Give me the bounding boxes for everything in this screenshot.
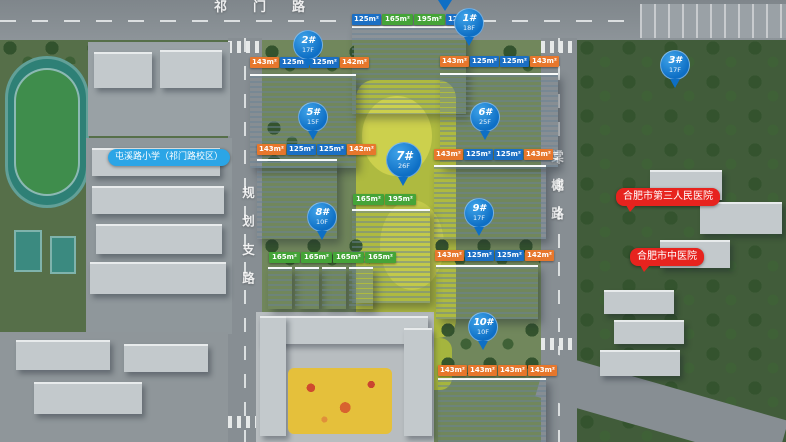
area-tag: 143m² <box>440 56 469 67</box>
area-tag: 125m² <box>500 56 529 67</box>
pin-balloon: 7# 26F <box>386 142 422 178</box>
pin-floors: 10F <box>316 219 328 226</box>
pin-number: 10# <box>473 318 492 328</box>
pin-tail <box>464 37 474 46</box>
area-tag: 142m² <box>340 57 369 68</box>
area-tag: 165m² <box>333 252 364 263</box>
area-tag: 143m² <box>435 250 464 261</box>
tower-8c <box>322 267 346 309</box>
school-roof <box>92 186 224 214</box>
pin-floors: 17F <box>302 47 314 54</box>
building-pin-9: 9# 17F <box>462 198 496 236</box>
crosswalk <box>541 338 577 350</box>
building-roof <box>600 350 680 376</box>
area-tag: 165m² <box>365 252 396 263</box>
hospital-roof <box>700 202 782 234</box>
road-name-top: 祁门路 <box>214 0 331 15</box>
sports-court <box>14 230 42 272</box>
pin-tail <box>317 231 327 240</box>
kindergarten-wing <box>260 316 286 436</box>
pin-balloon: 2# 17F <box>293 30 323 60</box>
pin-number: 5# <box>307 108 320 118</box>
pin-balloon: 5# 15F <box>298 102 328 132</box>
area-tags-building-5: 143m² 125m² 125m² 142m² <box>257 144 376 155</box>
road-name-left: 规划支路 <box>238 186 257 300</box>
track-infield <box>16 70 78 194</box>
building-roof <box>614 320 684 344</box>
hospital-label-1: 合肥市第三人民医院 <box>616 188 720 206</box>
area-tag: 143m² <box>250 57 279 68</box>
area-tag: 143m² <box>524 149 553 160</box>
pin-balloon: 10# 10F <box>468 312 498 342</box>
area-tags-building-7: 165m² 195m² <box>353 194 416 205</box>
school-roof <box>160 50 222 88</box>
building-pin-6: 6# 25F <box>468 102 502 140</box>
pin-balloon: 3# 17F <box>660 50 690 80</box>
area-tag: 165m² <box>301 252 332 263</box>
tower-8a <box>268 267 292 309</box>
pin-floors: 10F <box>477 329 489 336</box>
area-tag: 142m² <box>525 250 554 261</box>
area-tag: 195m² <box>385 194 416 205</box>
area-tag: 143m² <box>257 144 286 155</box>
school-roof <box>96 224 222 254</box>
school-roof <box>94 52 152 88</box>
pin-tail <box>478 341 488 350</box>
area-tag: 143m² <box>438 365 467 376</box>
parking-lot <box>640 4 786 38</box>
clipped-pin-tail <box>438 0 452 11</box>
tower-9 <box>436 265 538 319</box>
pin-floors: 26F <box>398 163 410 170</box>
area-tag: 165m² <box>269 252 300 263</box>
building-pin-5: 5# 15F <box>296 102 330 140</box>
pin-tail <box>670 79 680 88</box>
area-tags-building-10: 143m² 143m² 143m² 143m² <box>438 365 557 376</box>
pin-tail <box>474 227 484 236</box>
area-tag: 143m² <box>468 365 497 376</box>
pin-floors: 18F <box>463 25 475 32</box>
area-tags-building-9: 143m² 125m² 125m² 142m² <box>435 250 554 261</box>
area-tag: 143m² <box>498 365 527 376</box>
area-tag: 143m² <box>434 149 463 160</box>
pin-balloon: 9# 17F <box>464 198 494 228</box>
crosswalk <box>541 41 577 53</box>
area-tag: 165m² <box>353 194 384 205</box>
area-tag: 125m² <box>287 144 316 155</box>
pin-floors: 17F <box>473 215 485 222</box>
building-pin-3: 3# 17F <box>658 50 692 88</box>
pin-number: 7# <box>396 150 412 162</box>
tower-10 <box>438 378 546 442</box>
crosswalk <box>228 41 262 53</box>
area-tag: 125m² <box>494 149 523 160</box>
building-roof <box>124 344 208 372</box>
building-roof <box>34 382 142 414</box>
area-tag: 142m² <box>347 144 376 155</box>
pin-number: 3# <box>669 56 682 66</box>
pin-floors: 17F <box>669 67 681 74</box>
pin-floors: 25F <box>479 119 491 126</box>
building-roof <box>604 290 674 314</box>
pin-number: 2# <box>302 36 315 46</box>
building-pin-10: 10# 10F <box>466 312 500 350</box>
area-tag: 125m² <box>465 250 494 261</box>
school-roof <box>90 262 226 294</box>
area-tag: 143m² <box>528 365 557 376</box>
building-pin-1: 1# 18F <box>452 8 486 46</box>
pin-floors: 15F <box>307 119 319 126</box>
area-tag: 125m² <box>352 14 381 25</box>
pin-tail <box>308 131 318 140</box>
building-pin-2: 2# 17F <box>291 30 325 68</box>
area-tag: 195m² <box>414 14 445 25</box>
area-tag: 125m² <box>470 56 499 67</box>
pin-number: 8# <box>316 208 329 218</box>
area-tag: 165m² <box>382 14 413 25</box>
pin-number: 6# <box>479 108 492 118</box>
sports-court <box>50 236 76 274</box>
pin-number: 1# <box>463 14 476 24</box>
area-tags-building-6: 143m² 125m² 125m² 143m² <box>434 149 553 160</box>
aerial-masterplan: 125m² 165m² 195m² 125m² 143m² 125m² 125m… <box>0 0 786 442</box>
pin-tail <box>303 59 313 68</box>
pin-tail <box>480 131 490 140</box>
pin-tail <box>398 177 408 186</box>
pin-balloon: 1# 18F <box>454 8 484 38</box>
kindergarten-playground <box>288 368 392 434</box>
tower-8b <box>295 267 319 309</box>
area-tags-building-8: 165m² 165m² 165m² 165m² <box>269 252 396 263</box>
pin-number: 9# <box>473 204 486 214</box>
school-label: 屯溪路小学（祁门路校区） <box>108 149 230 166</box>
tower-8d <box>349 267 373 309</box>
area-tag: 125m² <box>464 149 493 160</box>
area-tag: 125m² <box>495 250 524 261</box>
area-tag: 125m² <box>317 144 346 155</box>
building-pin-8: 8# 10F <box>305 202 339 240</box>
pin-balloon: 8# 10F <box>307 202 337 232</box>
hospital-label-2: 合肥市中医院 <box>630 248 704 266</box>
pin-balloon: 6# 25F <box>470 102 500 132</box>
area-tag: 143m² <box>530 56 559 67</box>
building-roof <box>16 340 110 370</box>
building-pin-7: 7# 26F <box>386 142 420 186</box>
kindergarten-wing <box>404 328 432 436</box>
area-tags-building-3: 143m² 125m² 125m² 143m² <box>440 56 559 67</box>
